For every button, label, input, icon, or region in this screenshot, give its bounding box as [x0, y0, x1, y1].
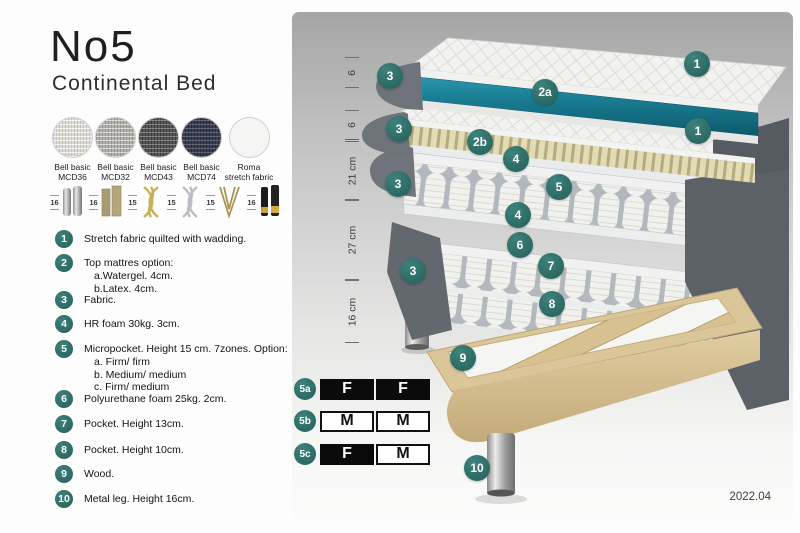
- callout-3-bottom: 3: [400, 258, 426, 284]
- feature-text: Pocket. Height 10cm.: [84, 441, 184, 457]
- version-label: 2022.04: [729, 491, 771, 503]
- feature-text: Pocket. Height 13cm.: [84, 415, 184, 431]
- feature-text: Micropocket. Height 15 cm. 7zones. Optio…: [84, 340, 288, 394]
- feature-item: 9 Wood.: [55, 465, 114, 483]
- firmness-row-label: 5b: [294, 410, 316, 432]
- feature-item: 6 Polyurethane foam 25kg. 2cm.: [55, 390, 226, 408]
- feature-item: 3 Fabric.: [55, 291, 116, 309]
- ruler-tick: [345, 87, 359, 88]
- feature-item: 5 Micropocket. Height 15 cm. 7zones. Opt…: [55, 340, 288, 394]
- ruler-tick: [345, 280, 359, 281]
- dimension-ruler-segment: 27 cm: [338, 200, 366, 280]
- callout-8: 8: [539, 291, 565, 317]
- callout-3-second: 3: [386, 116, 412, 142]
- feature-text: HR foam 30kg. 3cm.: [84, 315, 180, 331]
- feature-text: Polyurethane foam 25kg. 2cm.: [84, 390, 226, 406]
- firmness-row-label: 5c: [294, 443, 316, 465]
- ruler-tick: [345, 110, 359, 111]
- callout-1-second: 1: [685, 118, 711, 144]
- callout-2b: 2b: [467, 129, 493, 155]
- ruler-tick: [345, 57, 359, 58]
- feature-number-badge: 5: [55, 340, 73, 358]
- feature-number-badge: 6: [55, 390, 73, 408]
- ruler-tick: [345, 141, 359, 142]
- firmness-cell: M: [376, 444, 430, 465]
- firmness-cell: M: [320, 411, 374, 432]
- feature-number-badge: 3: [55, 291, 73, 309]
- dimension-ruler-segment: 16 cm: [338, 280, 366, 343]
- feature-text: Stretch fabric quilted with wadding.: [84, 230, 246, 246]
- callout-6: 6: [507, 232, 533, 258]
- feature-subline: a.Watergel. 4cm.: [94, 270, 173, 283]
- ruler-tick: [345, 342, 359, 343]
- feature-text: Fabric.: [84, 291, 116, 307]
- feature-item: 7 Pocket. Height 13cm.: [55, 415, 184, 433]
- feature-number-badge: 9: [55, 465, 73, 483]
- feature-text: Metal leg. Height 16cm.: [84, 490, 194, 506]
- callout-3-top: 3: [377, 63, 403, 89]
- feature-text: Top mattres option: a.Watergel. 4cm. b.L…: [84, 254, 173, 295]
- feature-number-badge: 8: [55, 441, 73, 459]
- callout-5: 5: [546, 174, 572, 200]
- callout-4-lower: 4: [505, 202, 531, 228]
- product-sheet: No5 Continental Bed Bell basic MCD36 Bel…: [0, 0, 800, 533]
- firmness-row-label: 5a: [294, 378, 316, 400]
- feature-number-badge: 1: [55, 230, 73, 248]
- dimension-label: 21 cm: [346, 156, 358, 185]
- callout-1-top: 1: [684, 51, 710, 77]
- firmness-cell: M: [376, 411, 430, 432]
- feature-number-badge: 7: [55, 415, 73, 433]
- dimension-label: 16 cm: [346, 297, 358, 326]
- feature-number-badge: 4: [55, 315, 73, 333]
- feature-list: 1 Stretch fabric quilted with wadding. 2…: [0, 0, 292, 533]
- dimension-ruler-segment: 6: [338, 110, 366, 140]
- firmness-row: 5b M M: [294, 410, 430, 432]
- firmness-cell: F: [320, 444, 374, 465]
- feature-subline: a. Firm/ firm: [94, 356, 288, 369]
- feature-subline: b. Medium/ medium: [94, 369, 288, 382]
- feature-item: 10 Metal leg. Height 16cm.: [55, 490, 194, 508]
- ruler-tick: [345, 139, 359, 140]
- feature-item: 8 Pocket. Height 10cm.: [55, 441, 184, 459]
- callout-10: 10: [464, 455, 490, 481]
- feature-item: 1 Stretch fabric quilted with wadding.: [55, 230, 246, 248]
- dimension-label: 6: [346, 122, 358, 128]
- dimension-ruler-segment: 6: [338, 57, 366, 88]
- feature-text: Wood.: [84, 465, 114, 481]
- ruler-tick: [345, 200, 359, 201]
- callout-3-middle: 3: [385, 171, 411, 197]
- feature-item: 2 Top mattres option: a.Watergel. 4cm. b…: [55, 254, 173, 295]
- callout-4-upper: 4: [503, 146, 529, 172]
- feature-number-badge: 2: [55, 254, 73, 272]
- firmness-cell: F: [320, 379, 374, 400]
- callout-2a: 2a: [532, 79, 558, 105]
- firmness-row: 5c F M: [294, 443, 430, 465]
- callout-7: 7: [538, 253, 564, 279]
- dimension-label: 6: [346, 70, 358, 76]
- dimension-ruler-segment: 21 cm: [338, 141, 366, 200]
- firmness-cell: F: [376, 379, 430, 400]
- feature-item: 4 HR foam 30kg. 3cm.: [55, 315, 180, 333]
- callout-9: 9: [450, 345, 476, 371]
- bed-diagram-panel: 6 6 21 cm 27 cm 16 cm 1 2a 3 1 3 2b: [292, 12, 793, 520]
- feature-number-badge: 10: [55, 490, 73, 508]
- dimension-label: 27 cm: [346, 226, 358, 255]
- firmness-row: 5a F F: [294, 378, 430, 400]
